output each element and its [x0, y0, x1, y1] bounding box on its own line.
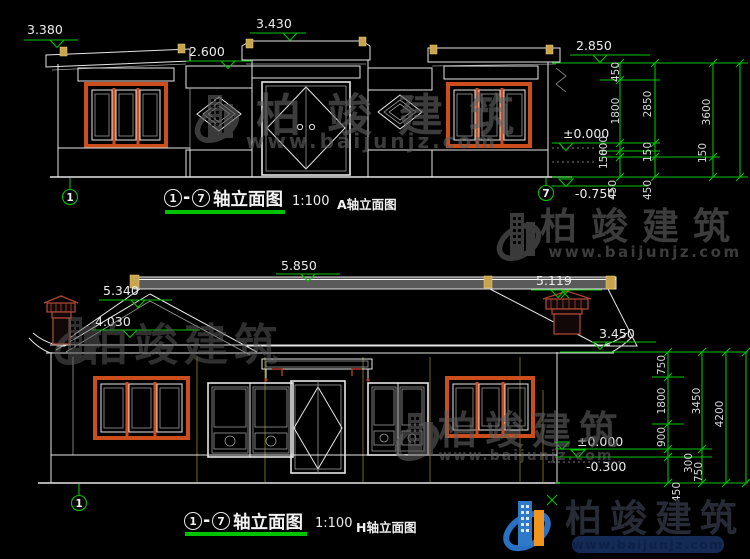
dim: 4200 — [714, 401, 726, 428]
top-left-wing-roof — [46, 44, 190, 70]
top-gate — [242, 37, 370, 177]
left-diamond-ornament — [197, 97, 241, 131]
title-underline — [165, 210, 285, 214]
brand-logo-url: www.baijunjz.com — [572, 537, 724, 552]
watermark-url: www.baijunjz.com — [548, 243, 741, 261]
brand-logo-glyph-icon — [500, 501, 554, 555]
top-left-low-wall — [186, 66, 252, 177]
leader-squiggle — [556, 68, 566, 92]
dim: 450 — [642, 180, 654, 200]
gate-door — [262, 82, 350, 175]
dim: 450 — [610, 62, 622, 82]
bottom-elevation-drawing: 5.850 5.340 5.119 4.030 3.450 ±0.000 -0.… — [29, 258, 750, 536]
top-title: 1 - 7 轴立面图 1:100 A轴立面图 — [165, 188, 397, 214]
right-hip-line — [490, 289, 600, 346]
bottom-left-lattice-window — [208, 383, 293, 457]
title-axis-from-bottom: 1 — [189, 516, 196, 528]
top-right-window — [448, 84, 530, 146]
top-left-window — [86, 84, 166, 146]
level-wall-left: 2.600 — [189, 44, 225, 59]
dim: 150 — [598, 149, 610, 169]
level-eave: 3.450 — [599, 326, 635, 341]
top-elevation-markers: 3.380 3.430 2.600 2.850 ±0.000 -0.750 — [24, 16, 660, 201]
title-axis-to: 7 — [197, 193, 204, 205]
level-zero-bottom: ±0.000 — [577, 434, 623, 449]
title-underline-bottom — [185, 532, 307, 536]
brand-logo-text: 柏竣建筑 — [565, 497, 745, 540]
level-gate-top: 3.430 — [256, 16, 292, 31]
bottom-title: 1 - 7 轴立面图 1:100 H轴立面图 — [185, 511, 417, 536]
bottom-scale: 1:100 — [315, 516, 352, 531]
dim: 750 — [656, 355, 668, 375]
axis-bubble-7: 7 — [542, 188, 549, 200]
dim: 3600 — [701, 99, 713, 126]
watermark-right-middle: 柏竣建筑 www.baijunjz.com — [494, 205, 744, 265]
dim: 150 — [642, 142, 654, 162]
top-right-wing — [428, 45, 566, 177]
axis-bubble-1-bottom: 1 — [75, 498, 82, 510]
dim: 750 — [693, 462, 705, 482]
bottom-left-orange-window — [95, 378, 188, 438]
right-chimney — [543, 291, 591, 334]
level-eave-right: 2.850 — [576, 38, 612, 53]
bottom-dimension-block: 750 1800 900 300 450 3450 750 4200 — [547, 348, 750, 505]
bottom-title-text: 轴立面图 — [233, 512, 303, 533]
right-diamond-ornament — [378, 95, 422, 129]
top-left-wing-wall — [58, 64, 190, 177]
top-right-low-wall — [368, 68, 432, 177]
level-roof-left: 3.380 — [27, 22, 63, 37]
title-axis-to-bottom: 7 — [217, 516, 224, 528]
level-ridge: 5.850 — [281, 258, 317, 273]
title-sep-bottom: - — [203, 511, 210, 531]
bottom-entrance-door — [291, 381, 345, 473]
watermark-brand: 柏竣建筑 — [540, 205, 744, 248]
door-knocker-right — [309, 124, 314, 129]
top-subtitle: A轴立面图 — [337, 197, 397, 212]
dim: 900 — [656, 427, 668, 447]
level-slope: 4.030 — [95, 314, 131, 329]
cad-canvas: 3.380 3.430 2.600 2.850 ±0.000 -0.750 — [0, 0, 750, 559]
brand-glyph-icon — [494, 213, 545, 265]
bottom-right-lattice-window — [368, 383, 428, 455]
level-minus: -0.300 — [586, 459, 626, 474]
title-axis-from: 1 — [169, 193, 176, 205]
level-chimney: 5.119 — [536, 273, 572, 288]
left-gable — [56, 294, 257, 355]
left-eave-curl — [29, 333, 56, 353]
top-scale: 1:100 — [292, 194, 329, 209]
dim: 3450 — [691, 388, 703, 415]
title-sep: - — [183, 188, 190, 208]
watermark-url: www.baijunjz.com — [246, 129, 498, 153]
bottom-wall — [38, 352, 560, 483]
dim: 450 — [607, 180, 619, 200]
axis-bubble-1: 1 — [66, 192, 73, 204]
dim: 1800 — [610, 98, 622, 125]
dim: 150 — [697, 143, 709, 163]
dim: 450 — [671, 482, 683, 502]
axis-grid-lines — [197, 357, 543, 482]
entrance-canopy — [262, 359, 372, 382]
bottom-subtitle: H轴立面图 — [356, 520, 416, 535]
top-title-text: 轴立面图 — [213, 189, 283, 210]
left-chimney — [44, 296, 78, 344]
level-gable: 5.340 — [103, 283, 139, 298]
brand-url-pill — [572, 536, 724, 553]
elevation-drawing-svg: 3.380 3.430 2.600 2.850 ±0.000 -0.750 — [0, 0, 750, 559]
brand-glyph-icon — [392, 413, 443, 465]
bottom-axis-markers: 1 — [72, 484, 87, 511]
dim: 2850 — [642, 91, 654, 118]
top-elevation-drawing: 3.380 3.430 2.600 2.850 ±0.000 -0.750 — [24, 16, 748, 214]
brand-logo-corner: 柏竣建筑 www.baijunjz.com — [500, 497, 745, 555]
dim: 1800 — [656, 388, 668, 415]
watermark-top-center: 柏竣建筑 www.baijunjz.com — [192, 89, 540, 153]
door-knocker-left — [297, 124, 302, 129]
